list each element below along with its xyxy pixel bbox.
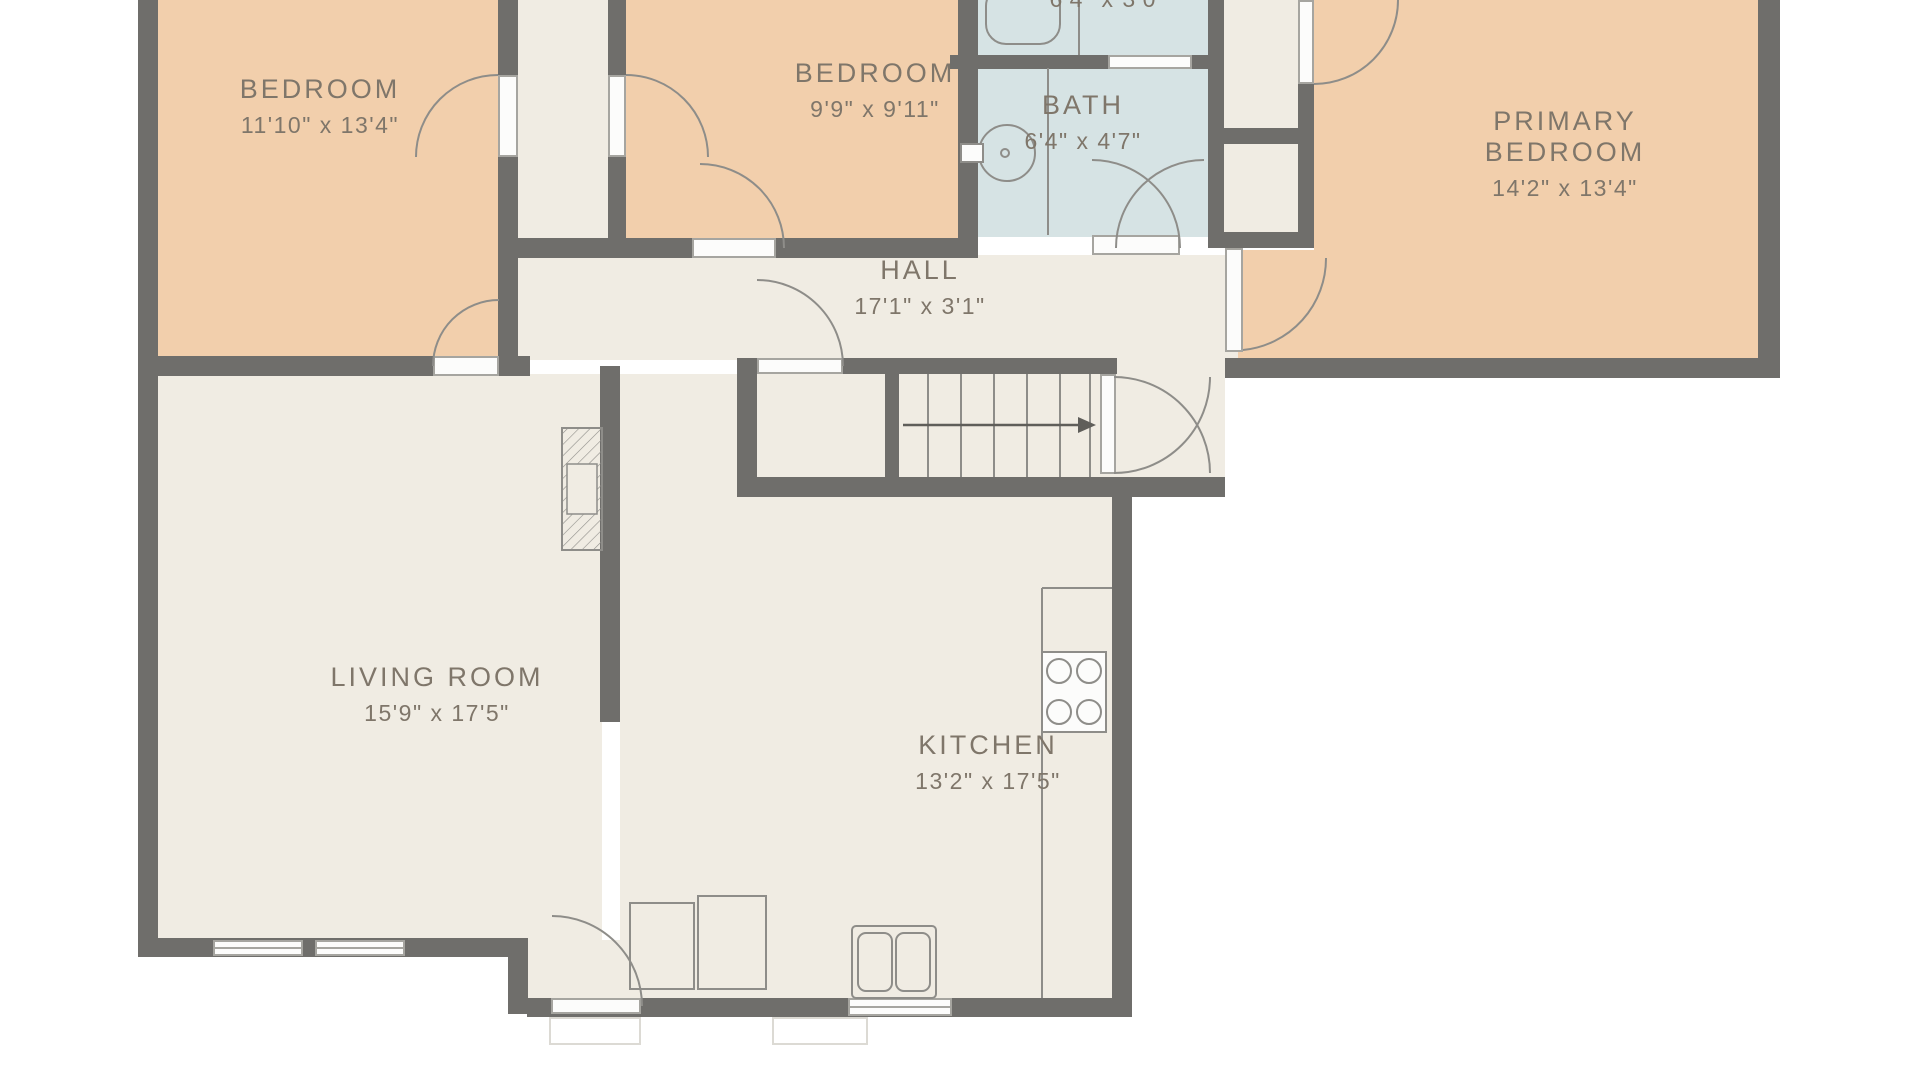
primary-closet-top-floor: [1224, 0, 1298, 130]
wall-living-kitchen-divider: [600, 366, 620, 722]
wall-kitchen-right: [1112, 477, 1132, 1017]
stairs-door-leaf: [1100, 374, 1116, 474]
bedroom2-door-opening: [692, 238, 776, 258]
front-door-leaf: [551, 998, 641, 1014]
primary-door-leaf: [1225, 248, 1243, 352]
wall-under-closets: [1208, 232, 1312, 248]
primary-bedroom-entry-floor: [1238, 250, 1338, 360]
toilet-room-floor: [978, 0, 1208, 57]
entry-floor: [518, 940, 620, 1002]
bedroom1-door-opening: [433, 356, 499, 376]
bath-door-opening: [1092, 235, 1180, 255]
bath-floor: [978, 57, 1208, 237]
primary-closet-bottom-floor: [1224, 144, 1298, 234]
bedroom-1-floor: [158, 0, 498, 358]
wall-toilet-room-bottom-a: [950, 55, 1112, 69]
bedroom-closet-floor: [518, 0, 608, 240]
living-window-right: [315, 940, 405, 956]
wall-bedroom1-right: [498, 0, 518, 356]
toilet-room-door-opening: [1108, 55, 1192, 69]
bedroom1-closet-door-leaf: [498, 75, 518, 157]
kitchen-window: [848, 998, 952, 1016]
front-porch-step: [549, 1017, 641, 1045]
bedroom2-closet-door-leaf: [608, 75, 626, 157]
living-room-floor: [158, 374, 602, 940]
hall-floor: [518, 255, 1238, 360]
floor-plan: BEDROOM 11'10" x 13'4" BEDROOM 9'9" x 9'…: [0, 0, 1920, 1080]
wall-exterior-right: [1758, 0, 1780, 378]
living-window-left: [213, 940, 303, 956]
wall-primary-closet-divider: [1218, 128, 1304, 144]
landing-floor: [1117, 360, 1225, 478]
wall-bath-left: [958, 0, 978, 255]
wall-primary-bottom: [1225, 358, 1780, 378]
primary-closet-door-leaf: [1298, 0, 1314, 84]
hall-stairs-door-opening: [757, 358, 843, 374]
wall-exterior-left: [138, 0, 158, 957]
wall-stair-bottom: [737, 477, 1225, 497]
wall-bath-right: [1208, 0, 1224, 248]
kitchen-porch-step: [772, 1017, 868, 1045]
kitchen-floor: [620, 374, 1112, 1000]
bedroom-2-floor: [626, 0, 958, 240]
wall-stair-divider: [885, 374, 899, 477]
wall-entry-step: [508, 938, 528, 1014]
primary-bedroom-floor: [1314, 0, 1758, 360]
